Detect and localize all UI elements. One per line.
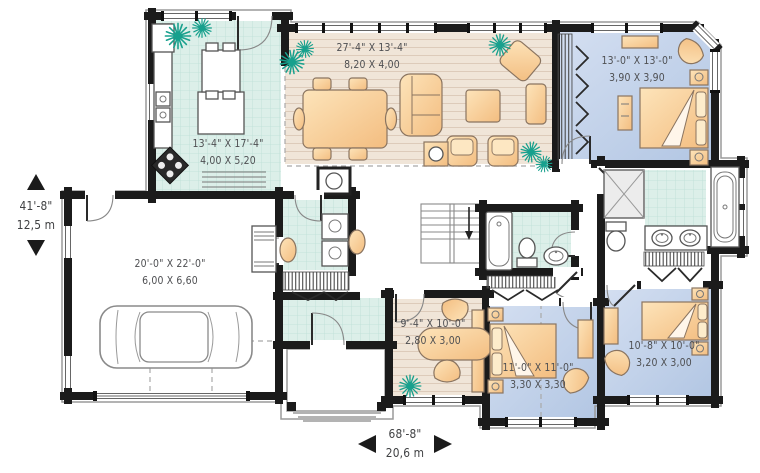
dresser [622,36,658,48]
window [161,11,232,21]
right-arrow-icon [434,435,452,453]
window [295,23,437,33]
pillow [696,92,706,117]
kitchen-sink-icon [156,108,170,122]
nightstand [488,308,503,321]
window [467,23,547,33]
window [63,356,73,388]
furnace [252,226,276,272]
closet-hatch [644,252,704,266]
chair [223,91,235,99]
window [403,395,465,405]
window [710,49,720,93]
plant-icon [399,375,421,397]
dresser [578,320,593,358]
bathtub-icon [711,167,739,247]
window [627,395,689,405]
sofa [400,74,442,136]
closet-opening [489,298,559,306]
guest-chair [434,360,460,382]
pillow [492,353,502,375]
office-chair [442,299,468,321]
hall-console [349,230,365,254]
dryer-icon [322,241,348,266]
window [505,417,577,427]
kitchen-island [198,92,244,134]
nightstand [488,380,503,393]
closet-hatch [283,272,349,290]
chair [386,108,397,130]
up-arrow-icon [27,174,45,190]
coffee-table [466,90,500,122]
sink-icon [652,230,672,246]
floor-plan-canvas: 27'-4" X 13'-4" 8,20 X 4,00 13'-4" X 17'… [0,0,760,473]
closet-hatch [558,34,572,160]
kitchen-sink-icon [156,92,170,106]
dresser [618,96,632,130]
toilet-icon [517,258,537,267]
kitchen-table [202,50,240,92]
desk [418,328,492,360]
window [591,23,663,33]
plant-icon [489,34,511,56]
nightstand [690,150,708,165]
chair [313,78,331,90]
pillow [698,304,707,320]
toilet-icon [606,222,626,231]
washer-icon [322,214,348,239]
door [85,190,115,221]
dresser [604,308,618,344]
car-icon [100,306,252,368]
chair [206,91,218,99]
water-heater-icon [326,173,342,189]
console-table [526,84,546,124]
left-arrow-icon [358,435,376,453]
plant-icon [165,23,190,48]
chair [313,148,331,160]
closet-hatch [487,276,555,288]
down-arrow-icon [27,240,45,256]
chair [349,78,367,90]
dining-table [303,90,387,148]
sink-icon [680,230,700,246]
window [63,226,73,258]
pillow [698,322,707,338]
chair [223,43,235,51]
floor-plan-drawing [0,0,760,473]
nightstand [690,70,708,85]
chair [294,108,305,130]
porch [287,349,386,421]
door [553,267,581,299]
foyer-floor [279,298,385,343]
pillow [492,328,502,350]
stairs [421,204,483,263]
porch-post [287,402,296,411]
garage-door [93,391,250,401]
garage-contents [100,226,276,368]
chair [206,43,218,51]
nightstand [692,288,708,300]
sink-icon [544,247,568,265]
pillow [696,120,706,145]
laundry-sink-icon [280,238,296,262]
chair [349,148,367,160]
nightstand [692,342,708,355]
